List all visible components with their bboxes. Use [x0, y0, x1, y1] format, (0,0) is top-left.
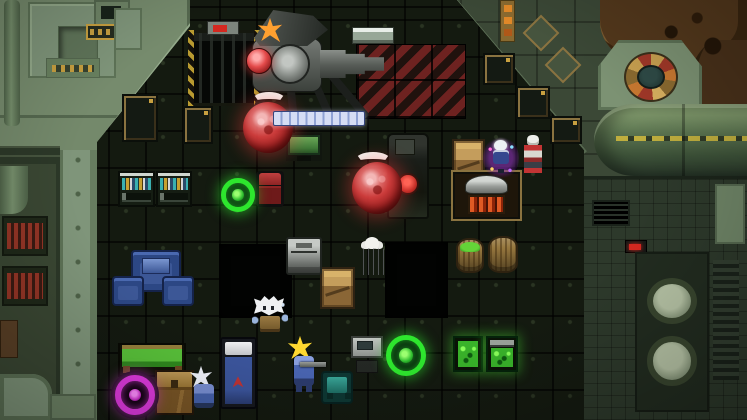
blue-monster-with-gun[interactable]	[286, 334, 322, 400]
vent-slats	[713, 260, 739, 380]
wall-pillar	[60, 150, 97, 420]
blue-monster-sparkle-head[interactable]	[188, 366, 222, 414]
turret-hub	[270, 44, 310, 84]
hatch-ring	[624, 52, 678, 102]
skeleton-npc-purple-aura[interactable]	[483, 136, 519, 180]
green-portal[interactable]	[386, 335, 426, 376]
shaggy-white-monster[interactable]	[252, 296, 288, 340]
barrel-green-top[interactable]	[456, 238, 484, 273]
rifle	[300, 362, 326, 367]
turret-cannon-barrel	[320, 50, 384, 78]
floor-pit	[385, 242, 448, 318]
monster-fur-head	[254, 296, 284, 318]
grey-appliance[interactable]	[351, 336, 383, 373]
blue-armchair[interactable]	[162, 276, 194, 306]
wall-panel	[715, 184, 745, 244]
reactor-module	[635, 252, 709, 412]
blue-armchair[interactable]	[112, 276, 144, 306]
wall-locker[interactable]	[122, 94, 158, 142]
wall-locker[interactable]	[183, 106, 213, 144]
bookshelf[interactable]	[156, 171, 192, 207]
wall-pipe	[4, 0, 20, 126]
wall-horizontal-pipes	[0, 146, 60, 164]
chest-latch	[171, 380, 178, 388]
metal-chest[interactable]	[286, 237, 322, 275]
wall-vent	[592, 200, 630, 226]
monster-body	[294, 356, 314, 386]
white-robed-npc[interactable]	[357, 237, 387, 275]
storage-tank	[594, 104, 747, 176]
circuit-wall	[583, 176, 747, 420]
green-console[interactable]	[286, 133, 322, 161]
blue-bed[interactable]	[220, 337, 257, 409]
teal-armchair[interactable]	[321, 371, 353, 404]
pipe-elbow	[0, 166, 28, 214]
glowing-supply-box[interactable]	[486, 336, 518, 372]
radiator-vent	[2, 216, 48, 256]
red-orb-enemy[interactable]	[243, 102, 293, 153]
red-armchair[interactable]	[256, 171, 284, 207]
magenta-portal[interactable]	[115, 375, 155, 415]
game-viewport	[0, 0, 747, 420]
glowing-supply-box[interactable]	[453, 336, 483, 372]
skeleton-npc-red-scarf[interactable]	[518, 135, 548, 181]
charge-progress-bar	[273, 111, 365, 126]
wicker-barrel[interactable]	[488, 236, 518, 273]
wall-locker[interactable]	[550, 116, 582, 144]
wall-conduit	[500, 0, 515, 42]
machine-button-tray	[46, 58, 100, 78]
wooden-crate[interactable]	[320, 267, 355, 309]
machine-side-panel	[114, 8, 142, 50]
radiator-vent	[2, 266, 48, 306]
wall-panel	[50, 394, 96, 420]
green-portal[interactable]	[221, 178, 255, 212]
appliance-screen	[357, 341, 373, 350]
bookshelf[interactable]	[118, 171, 155, 207]
furnace-stove[interactable]	[451, 170, 522, 221]
wall-pipe-stub	[0, 320, 18, 358]
rack-warning-label	[207, 21, 239, 35]
table-legs	[123, 366, 130, 373]
red-orb-enemy[interactable]	[352, 162, 402, 214]
wall-locker[interactable]	[516, 86, 550, 119]
wall-locker[interactable]	[483, 53, 515, 85]
turret-red-core	[246, 48, 272, 74]
blanket-emblem	[233, 376, 244, 387]
pipe-elbow	[0, 374, 52, 420]
